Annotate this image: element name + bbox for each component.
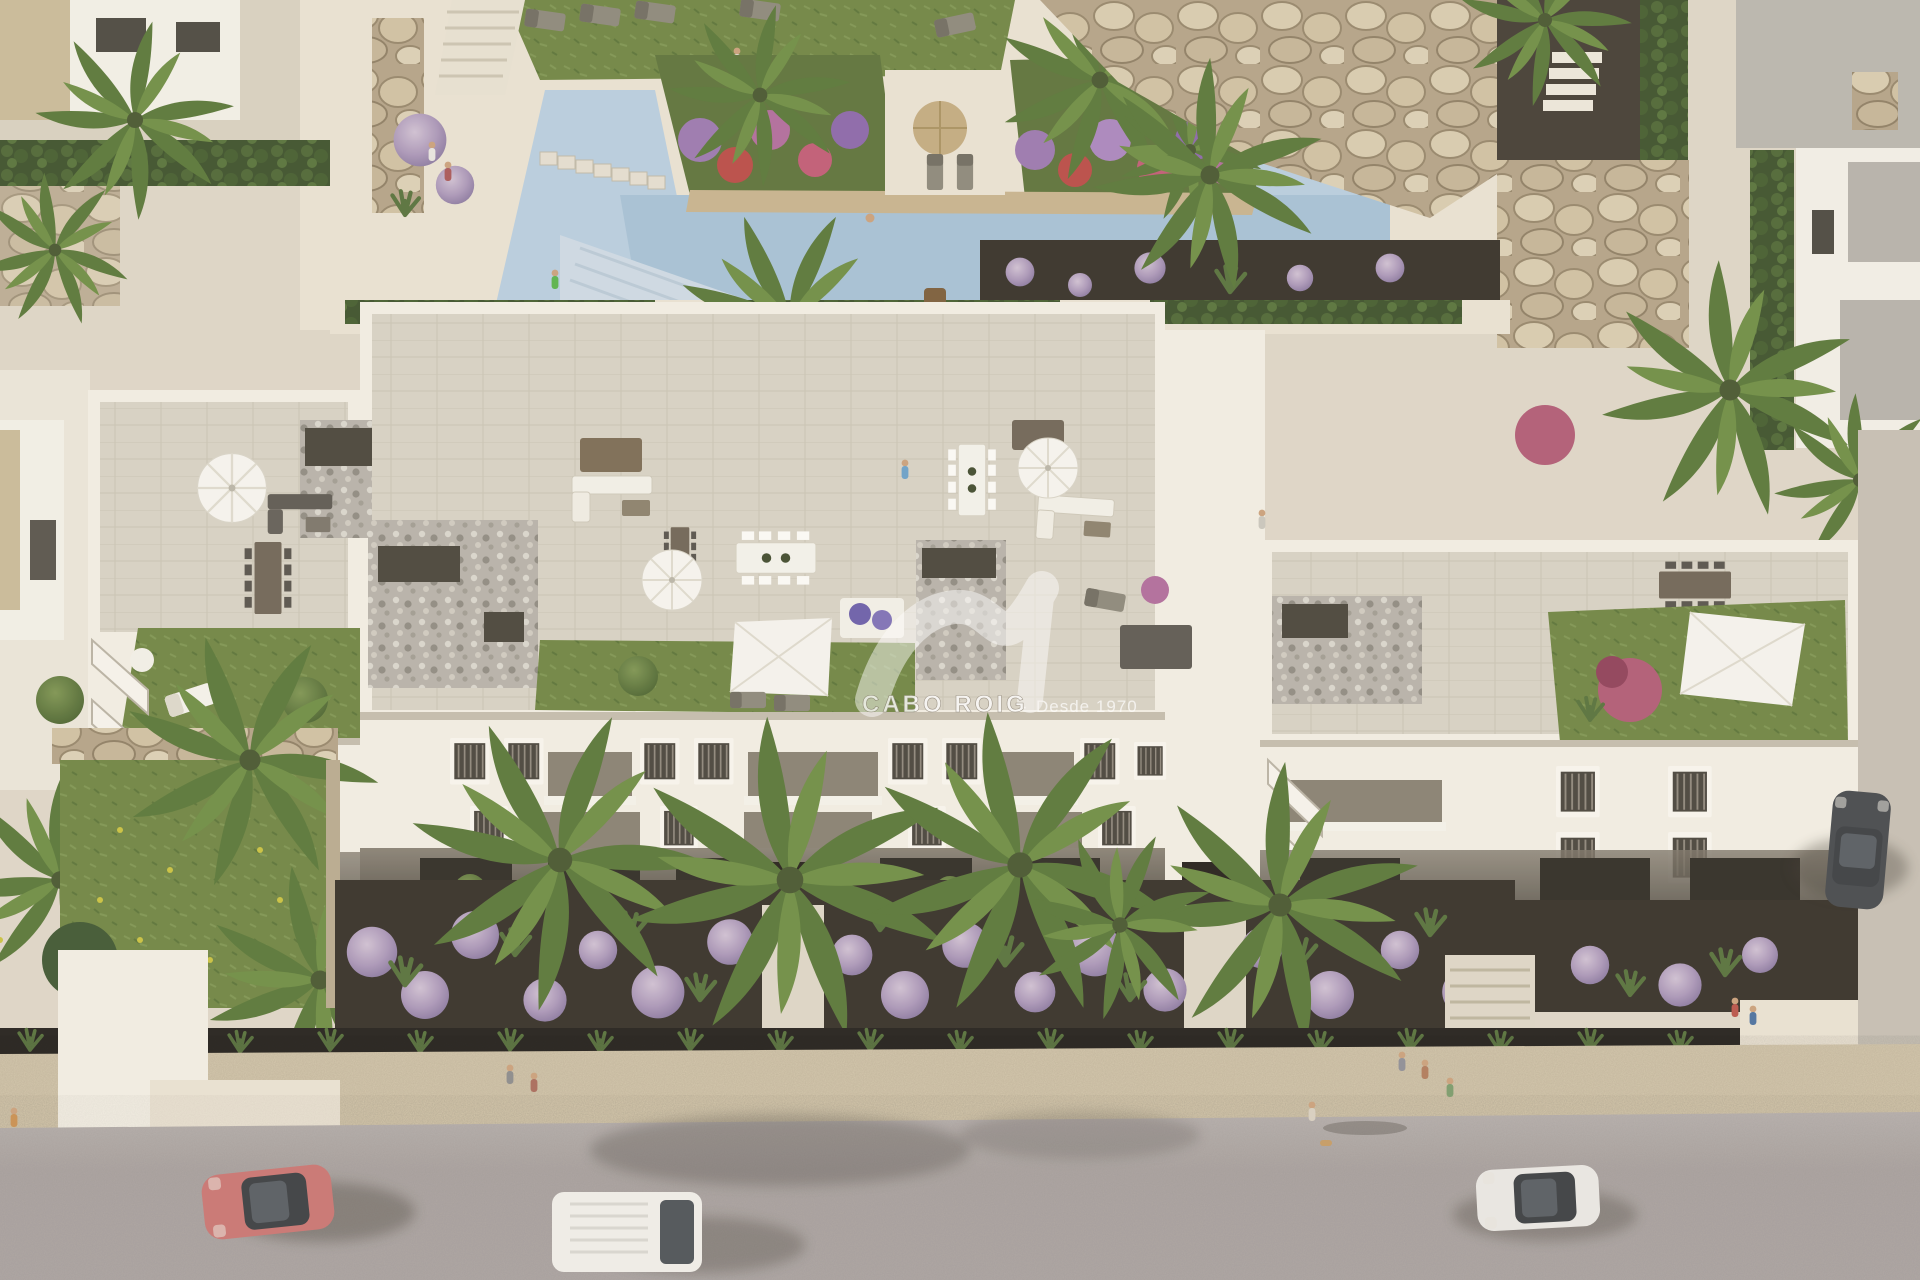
render-canvas: CABO ROIG · Desde 1970 [0,0,1920,1280]
sunlight-overlay [0,0,1920,1280]
